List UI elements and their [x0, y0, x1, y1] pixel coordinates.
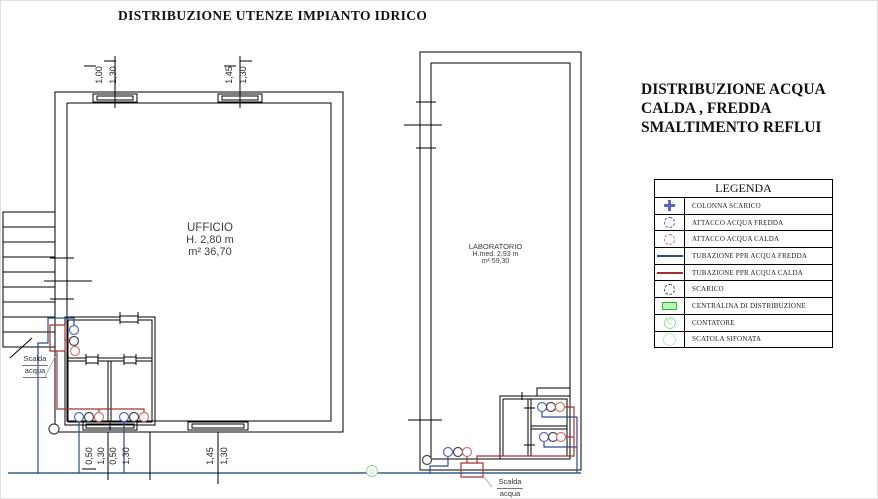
legend-row-label: SCATOLA SIFONATA	[685, 335, 761, 343]
colonna-scarico-icon	[664, 200, 675, 211]
legend-row: TUBAZIONE PPR ACQUA FREDDA	[655, 248, 832, 265]
legend-row-label: COLONNA SCARICO	[685, 202, 761, 210]
scalda-lab-line2: acqua	[498, 489, 522, 499]
leader-lines	[45, 351, 492, 487]
ufficio-height: H. 2,80 m	[150, 234, 270, 246]
laboratorio-area: m² 59,30	[443, 258, 548, 265]
dimension-label: 1,45	[224, 66, 234, 84]
scalda-office-line1: Scalda	[22, 354, 49, 366]
distribution-note: DISTRIBUZIONE ACQUA CALDA , FREDDA SMALT…	[641, 80, 876, 138]
ufficio-label: UFFICIO H. 2,80 m m² 36,70	[150, 222, 270, 258]
legend-row-label: SCARICO	[685, 285, 724, 293]
dimension-label: 1,00	[94, 66, 104, 84]
lab-bathroom-walls	[500, 388, 570, 459]
laboratorio-label: LABORATORIO H.med. 2,93 m m² 59,30	[443, 242, 548, 265]
dimension-label: 0,50	[108, 447, 118, 465]
legend-row: SCARICO	[655, 281, 832, 298]
dimension-label: 1,30	[108, 66, 118, 84]
scarico-icon	[664, 284, 675, 295]
tubazione-fredda-icon	[657, 255, 683, 257]
attacco-acqua-calda-icon	[664, 234, 675, 245]
tubazione-calda-icon	[657, 272, 683, 274]
legend-row-label: TUBAZIONE PPR ACQUA CALDA	[685, 269, 803, 277]
scalda-acqua-label-lab: Scalda acqua	[489, 477, 531, 499]
legend-row: ATTACCO ACQUA CALDA	[655, 231, 832, 248]
dimension-label: 0,50	[84, 447, 94, 465]
attacco-acqua-fredda-icon	[664, 217, 675, 228]
legend-row-label: CONTATORE	[685, 319, 735, 327]
scalda-lab-line1: Scalda	[497, 477, 524, 489]
blueprint-canvas: C DISTRIBUZIONE UTENZE IMPIANTO IDRICO D…	[0, 0, 878, 499]
dimension-label: 1,30	[219, 447, 229, 465]
legend-row: C CONTATORE	[655, 315, 832, 332]
legend-row-label: ATTACCO ACQUA FREDDA	[685, 219, 783, 227]
legend-row: TUBAZIONE PPR ACQUA CALDA	[655, 265, 832, 282]
ufficio-area: m² 36,70	[150, 246, 270, 258]
legend-title: LEGENDA	[655, 180, 832, 198]
legend-row-label: ATTACCO ACQUA CALDA	[685, 235, 779, 243]
office-walls	[44, 92, 343, 432]
ufficio-name: UFFICIO	[150, 222, 270, 234]
drawing-title: DISTRIBUZIONE UTENZE IMPIANTO IDRICO	[118, 8, 427, 24]
exterior-stairs	[3, 212, 55, 358]
legend: LEGENDA COLONNA SCARICO ATTACCO ACQUA FR…	[654, 179, 833, 348]
distribution-note-line1: DISTRIBUZIONE ACQUA	[641, 80, 876, 99]
contatore-symbol: C	[367, 466, 378, 477]
dimension-label: 1,45	[205, 447, 215, 465]
distribution-note-line3: SMALTIMENTO REFLUI	[641, 118, 876, 137]
hot-water-fixtures	[71, 347, 566, 457]
distribution-note-line2: CALDA , FREDDA	[641, 99, 876, 118]
cold-water-pipes	[38, 318, 577, 473]
legend-row-label: TUBAZIONE PPR ACQUA FREDDA	[685, 252, 807, 260]
dimension-label: 1,30	[238, 66, 248, 84]
scalda-office-line2: acqua	[23, 366, 47, 378]
legend-row: SCATOLA SIFONATA	[655, 332, 832, 348]
scatola-sifonata-icon	[663, 333, 676, 346]
legend-row: CENTRALINA DI DISTRIBUZIONE	[655, 298, 832, 315]
office-windows	[83, 94, 262, 430]
legend-row-label: CENTRALINA DI DISTRIBUZIONE	[685, 302, 806, 310]
contatore-letter: C	[370, 469, 375, 476]
cold-water-fixtures	[70, 326, 549, 457]
dimension-label: 1,30	[121, 447, 131, 465]
laboratorio-height: H.med. 2,93 m	[443, 251, 548, 258]
drain-fixtures	[49, 337, 558, 465]
legend-row: ATTACCO ACQUA FREDDA	[655, 215, 832, 232]
laboratorio-name: LABORATORIO	[443, 242, 548, 251]
contatore-icon: C	[664, 317, 676, 329]
scalda-acqua-label-office: Scalda acqua	[12, 354, 58, 378]
dimension-label: 1,30	[96, 447, 106, 465]
centralina-icon	[662, 302, 677, 310]
legend-row: COLONNA SCARICO	[655, 198, 832, 215]
